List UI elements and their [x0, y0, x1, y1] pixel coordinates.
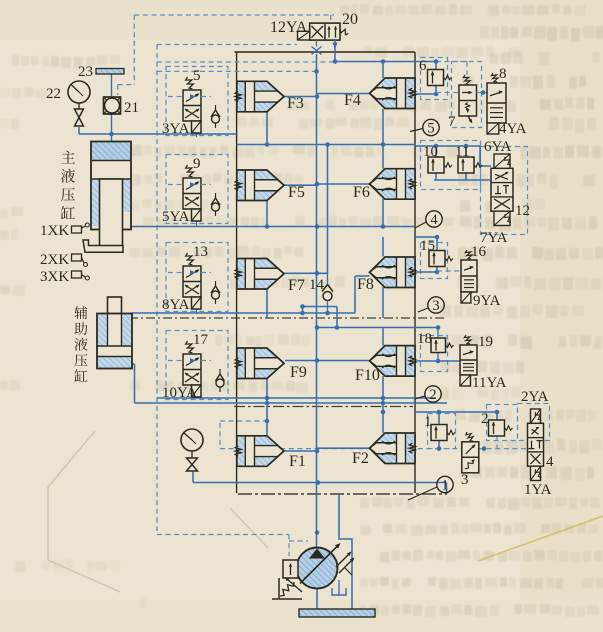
svg-text:5: 5	[193, 68, 201, 84]
svg-text:18: 18	[417, 331, 432, 347]
svg-text:F5: F5	[288, 184, 305, 201]
svg-text:4YA: 4YA	[499, 121, 527, 137]
svg-text:2: 2	[429, 387, 436, 403]
svg-text:F8: F8	[357, 276, 374, 293]
svg-text:3: 3	[432, 298, 439, 314]
svg-text:20: 20	[342, 11, 358, 28]
svg-text:4: 4	[430, 212, 438, 228]
svg-text:6YA: 6YA	[484, 139, 512, 155]
svg-text:11YA: 11YA	[472, 375, 507, 391]
svg-text:3XK: 3XK	[40, 269, 69, 285]
svg-text:F6: F6	[353, 184, 370, 201]
svg-text:F7: F7	[288, 277, 305, 294]
svg-text:F10: F10	[355, 367, 380, 384]
svg-text:12: 12	[515, 203, 530, 219]
svg-text:F9: F9	[290, 364, 307, 381]
svg-text:8: 8	[499, 66, 507, 82]
svg-text:3: 3	[461, 472, 469, 488]
svg-text:16: 16	[471, 244, 487, 260]
svg-text:5: 5	[427, 121, 434, 137]
svg-text:15: 15	[420, 238, 435, 254]
svg-text:23: 23	[78, 64, 93, 80]
svg-text:9YA: 9YA	[473, 293, 501, 309]
svg-text:1: 1	[424, 414, 432, 430]
svg-text:21: 21	[124, 100, 139, 116]
svg-text:3YA: 3YA	[162, 121, 190, 137]
svg-text:10: 10	[423, 144, 438, 160]
svg-text:8YA: 8YA	[162, 297, 190, 313]
svg-text:1YA: 1YA	[524, 482, 552, 498]
svg-text:F2: F2	[352, 450, 369, 467]
svg-text:11: 11	[455, 144, 469, 160]
svg-text:14: 14	[309, 277, 325, 293]
svg-text:F3: F3	[287, 95, 304, 112]
svg-text:5YA: 5YA	[162, 209, 190, 225]
svg-text:2: 2	[481, 411, 489, 427]
svg-text:4: 4	[546, 454, 554, 470]
svg-text:22: 22	[46, 86, 61, 102]
svg-text:F1: F1	[289, 453, 306, 470]
svg-text:2YA: 2YA	[521, 389, 549, 405]
svg-text:10YA: 10YA	[162, 385, 197, 401]
svg-text:F4: F4	[344, 92, 361, 109]
svg-text:6: 6	[419, 58, 427, 74]
svg-text:13: 13	[193, 244, 208, 260]
svg-text:7: 7	[448, 114, 456, 130]
svg-text:2XK: 2XK	[40, 252, 69, 268]
svg-text:9: 9	[193, 156, 201, 172]
svg-text:12YA: 12YA	[270, 19, 308, 36]
svg-text:19: 19	[478, 334, 493, 350]
svg-text:1: 1	[441, 478, 448, 494]
svg-text:1XK: 1XK	[40, 223, 69, 239]
svg-text:17: 17	[193, 332, 209, 348]
svg-text:7YA: 7YA	[480, 230, 508, 246]
